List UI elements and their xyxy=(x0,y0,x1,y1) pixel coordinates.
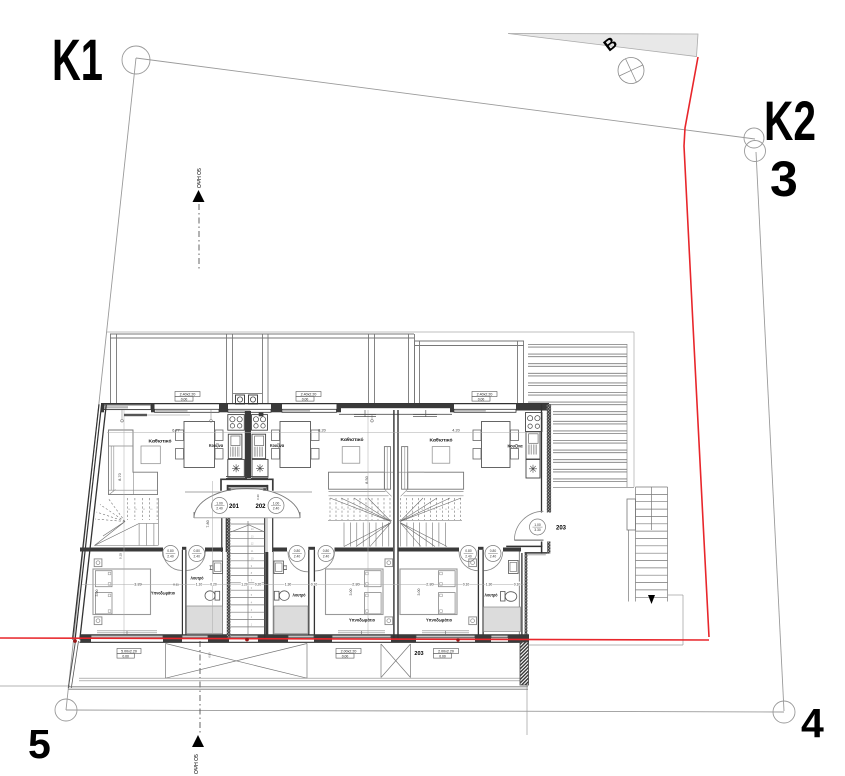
svg-text:1.00: 1.00 xyxy=(273,501,280,505)
svg-text:1.00: 1.00 xyxy=(216,501,223,505)
svg-text:0.15: 0.15 xyxy=(119,553,123,559)
svg-text:2.40: 2.40 xyxy=(273,507,280,511)
svg-text:7.80: 7.80 xyxy=(206,520,210,527)
svg-text:Λουτρό: Λουτρό xyxy=(293,593,306,598)
svg-text:Καθιστικό: Καθιστικό xyxy=(430,438,453,443)
svg-text:0.20: 0.20 xyxy=(210,582,217,586)
svg-text:0.80: 0.80 xyxy=(465,549,472,553)
svg-text:0.80: 0.80 xyxy=(294,549,301,553)
svg-text:3.89: 3.89 xyxy=(134,582,141,586)
svg-text:2.80: 2.80 xyxy=(352,582,359,586)
svg-text:0.10: 0.10 xyxy=(514,582,521,586)
svg-text:K1: K1 xyxy=(52,28,103,93)
svg-text:2.40x2.20: 2.40x2.20 xyxy=(477,393,493,397)
svg-text:5: 5 xyxy=(28,721,51,767)
svg-text:0.00: 0.00 xyxy=(302,397,309,401)
svg-text:0.30: 0.30 xyxy=(256,494,260,500)
svg-text:0.00: 0.00 xyxy=(439,654,446,658)
svg-text:Υπνοδωμάτιο: Υπνοδωμάτιο xyxy=(426,618,452,623)
svg-text:0.80: 0.80 xyxy=(167,549,174,553)
svg-text:0.20: 0.20 xyxy=(255,582,262,586)
svg-text:2.00x2.20: 2.00x2.20 xyxy=(341,650,357,654)
svg-text:4.20: 4.20 xyxy=(452,428,459,432)
svg-text:1.20: 1.20 xyxy=(241,582,248,586)
svg-text:2.40: 2.40 xyxy=(465,554,472,558)
svg-text:ΟΨΗ Ο5: ΟΨΗ Ο5 xyxy=(194,754,200,774)
svg-text:1.00: 1.00 xyxy=(534,523,541,527)
svg-text:0.00: 0.00 xyxy=(478,397,485,401)
svg-text:2.40: 2.40 xyxy=(323,554,330,558)
svg-text:0.00: 0.00 xyxy=(342,654,349,658)
svg-text:0.00: 0.00 xyxy=(181,397,188,401)
svg-text:1.30: 1.30 xyxy=(486,582,493,586)
svg-text:Υπνοδωμάτιο: Υπνοδωμάτιο xyxy=(349,618,375,623)
svg-text:Κουζίνα: Κουζίνα xyxy=(209,443,223,448)
svg-text:Κουζίνα: Κουζίνα xyxy=(270,443,284,448)
svg-text:1.30: 1.30 xyxy=(285,582,292,586)
svg-text:2.00x2.20: 2.00x2.20 xyxy=(438,650,454,654)
svg-text:2.40: 2.40 xyxy=(167,554,174,558)
svg-text:ΟΨΗ Ο5: ΟΨΗ Ο5 xyxy=(197,168,203,188)
svg-text:201: 201 xyxy=(229,504,240,510)
svg-text:Λουτρό: Λουτρό xyxy=(191,576,204,581)
svg-text:2.40x2.20: 2.40x2.20 xyxy=(301,393,317,397)
svg-text:3.30: 3.30 xyxy=(534,528,541,532)
svg-text:Υπνοδωμάτιο: Υπνοδωμάτιο xyxy=(151,591,175,596)
svg-text:8.70: 8.70 xyxy=(118,473,122,480)
svg-text:2.40: 2.40 xyxy=(193,554,200,558)
svg-text:3.00: 3.00 xyxy=(417,589,421,596)
svg-text:2.80: 2.80 xyxy=(426,582,433,586)
svg-text:6.77: 6.77 xyxy=(172,428,179,432)
svg-text:Κουζίνα: Κουζίνα xyxy=(508,444,523,449)
svg-text:2.40: 2.40 xyxy=(216,507,223,511)
svg-text:0.80: 0.80 xyxy=(490,549,497,553)
svg-text:2.40x2.20: 2.40x2.20 xyxy=(180,393,196,397)
svg-text:3.00: 3.00 xyxy=(95,590,99,597)
svg-text:1.10: 1.10 xyxy=(196,582,203,586)
svg-text:8.50: 8.50 xyxy=(365,476,369,483)
svg-text:K2: K2 xyxy=(764,89,816,152)
svg-text:0.90: 0.90 xyxy=(208,652,212,658)
svg-text:3: 3 xyxy=(770,151,798,207)
svg-text:2.40: 2.40 xyxy=(294,554,301,558)
svg-text:Καθιστικό: Καθιστικό xyxy=(149,439,172,444)
svg-text:0.80: 0.80 xyxy=(323,549,330,553)
svg-text:0.80: 0.80 xyxy=(193,549,200,553)
svg-text:202: 202 xyxy=(255,504,266,510)
svg-text:5.00x2.20: 5.00x2.20 xyxy=(121,650,137,654)
svg-text:2.40: 2.40 xyxy=(490,554,497,558)
svg-text:0.11: 0.11 xyxy=(173,582,179,586)
svg-text:4: 4 xyxy=(801,700,824,746)
svg-text:203: 203 xyxy=(556,526,567,532)
svg-text:203: 203 xyxy=(414,651,423,657)
svg-text:3.00: 3.00 xyxy=(349,589,353,596)
svg-text:Λουτρό: Λουτρό xyxy=(485,593,498,598)
svg-text:0.00: 0.00 xyxy=(122,654,129,658)
svg-text:Καθιστικό: Καθιστικό xyxy=(341,437,364,442)
svg-text:0.10: 0.10 xyxy=(311,582,318,586)
svg-text:0.10: 0.10 xyxy=(463,582,470,586)
svg-text:8.20: 8.20 xyxy=(318,428,325,432)
